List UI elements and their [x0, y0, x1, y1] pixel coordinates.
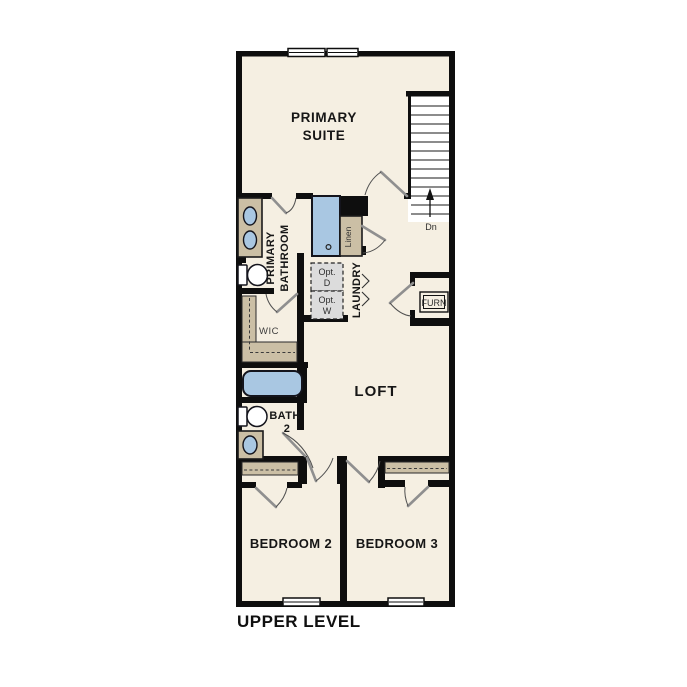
floor-plan-drawing: Dn: [0, 0, 687, 687]
loft-label: LOFT: [354, 383, 397, 400]
bath2-label-line2: 2: [284, 423, 291, 435]
suite-wall-mid-segment: [296, 193, 313, 199]
stairwell-floor: [408, 93, 449, 222]
wic-bottom-wall: [236, 362, 308, 368]
linen-label: Linen: [343, 226, 353, 247]
primary-bathroom-label-line1: PRIMARY: [265, 231, 277, 284]
furnace-left-wall-bottom: [410, 310, 415, 318]
bedroom3-label: BEDROOM 3: [356, 536, 438, 551]
wall-left: [236, 51, 242, 607]
spine-wall: [297, 253, 304, 430]
opt-dryer-label-line2: D: [324, 278, 331, 288]
vanity-sink-1: [244, 207, 257, 225]
bedroom3-entry-wall-left: [380, 480, 405, 487]
primary-bathroom-label-line2: BATHROOM: [279, 224, 291, 291]
bedroom2-closet-shelf: [242, 462, 298, 475]
bedroom2-closet-front-right: [287, 482, 302, 488]
bedroom3-closet-back-wall: [385, 456, 449, 462]
primary-toilet-tank: [238, 265, 247, 285]
stairs-stringer-wall: [408, 93, 411, 198]
primary-suite-label-line2: SUITE: [303, 128, 346, 143]
stairs-down-label: Dn: [425, 222, 437, 232]
furnace-bottom-wall: [410, 318, 455, 326]
wic-label: WIC: [259, 326, 279, 337]
bedroom2-closet-front-left: [236, 482, 256, 488]
furnace-label: FURN: [422, 298, 447, 308]
opt-dryer-label-line1: Opt.: [318, 267, 335, 277]
opt-washer-label-line2: W: [323, 306, 332, 316]
primary-suite-label-line1: PRIMARY: [291, 110, 357, 125]
bathtub: [243, 371, 302, 396]
level-title: UPPER LEVEL: [237, 612, 361, 631]
bedroom3-closet-shelf: [385, 462, 449, 473]
vanity-sink-2: [244, 231, 257, 249]
bath2-sink: [243, 436, 257, 454]
bath2-label-line1: BATH: [269, 410, 300, 422]
bathroom-wic-wall: [236, 288, 274, 294]
wall-right: [449, 51, 455, 607]
floor-plan-page: Dn: [0, 0, 687, 687]
furnace-top-wall: [410, 272, 455, 278]
chase-wall: [340, 196, 368, 216]
laundry-label: LAUNDRY: [351, 262, 363, 318]
bath2-toilet-tank: [238, 407, 247, 426]
hall-corner-post: [298, 456, 307, 484]
tub-bottom-wall: [236, 397, 307, 403]
stairs-top-wall: [406, 91, 449, 97]
bedroom-divider-wall: [340, 456, 347, 603]
bedroom3-entry-wall-right: [428, 480, 449, 487]
bedroom2-label: BEDROOM 2: [250, 536, 332, 551]
vanity-wall-stub: [236, 257, 246, 263]
opt-washer-label-line1: Opt.: [318, 295, 335, 305]
bath2-toilet-bowl: [247, 407, 267, 427]
